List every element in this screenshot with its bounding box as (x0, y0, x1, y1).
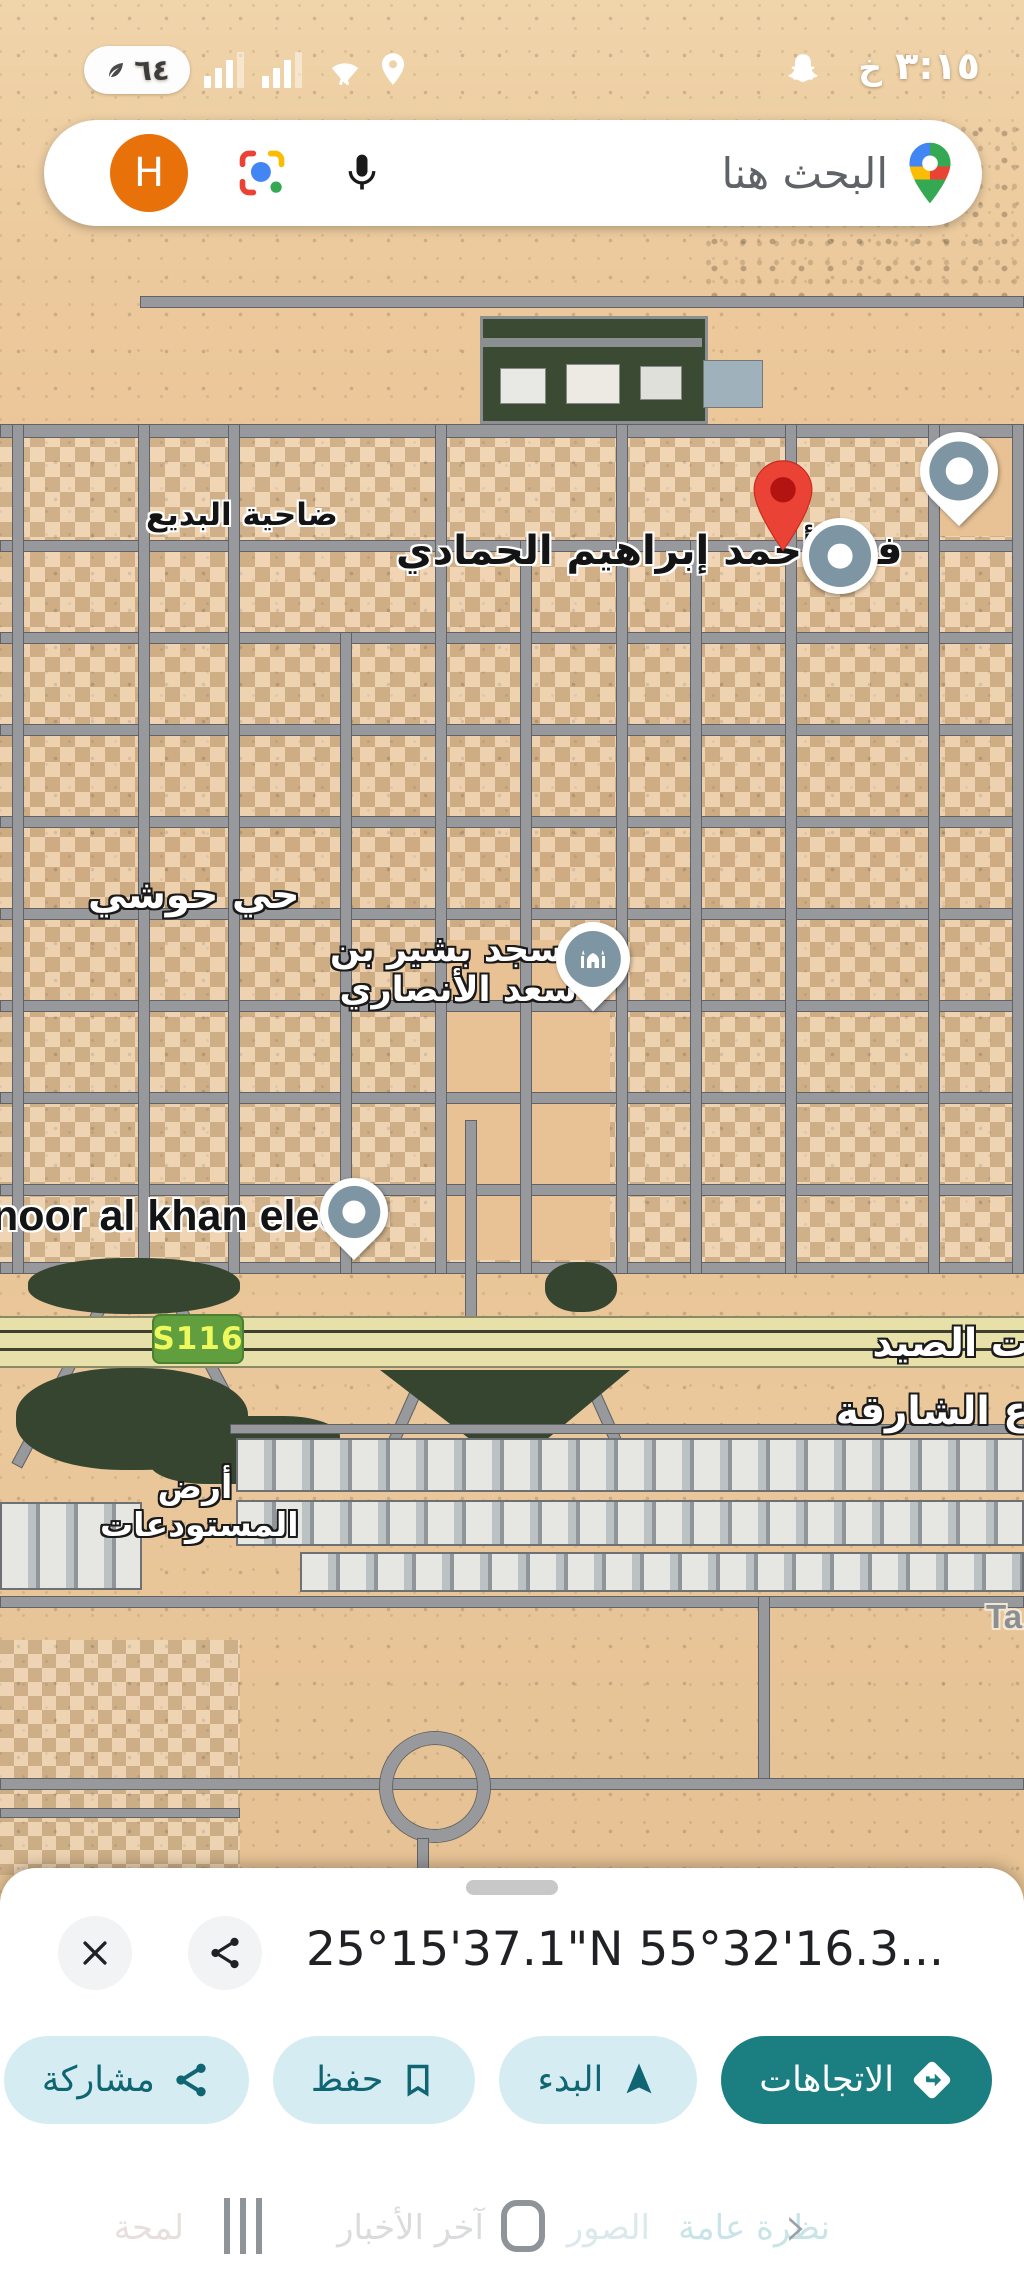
status-app-letter: خ (858, 48, 882, 87)
poi-circle-dot (828, 544, 853, 569)
bars-tab-icon (224, 2198, 262, 2254)
signal-icon (204, 52, 244, 88)
road (0, 1092, 1024, 1104)
signal-icon-sim2 (262, 52, 302, 88)
tab-news[interactable]: آخر الأخبار (337, 2208, 484, 2248)
status-bar: ٦٤ خ ٣:١٥ (0, 40, 1024, 104)
share-icon (206, 1934, 244, 1972)
place-bottom-sheet[interactable]: 25°15'37.1"N 55°32'16.3... الاتجاهات الب… (0, 1868, 1024, 2275)
share-button-header[interactable] (188, 1916, 262, 1990)
drag-handle[interactable] (466, 1880, 558, 1895)
road (520, 540, 532, 1274)
building (703, 360, 763, 408)
mosque-icon (575, 941, 611, 977)
close-button[interactable] (58, 1916, 132, 1990)
warehouses-label-line2: المستودعات (100, 1506, 290, 1544)
share-button-chip[interactable]: مشاركة (4, 2036, 249, 2124)
coordinates-title: 25°15'37.1"N 55°32'16.3... (306, 1922, 1006, 1977)
chevron-right-icon[interactable]: › (785, 2192, 808, 2260)
navigation-icon (619, 2060, 659, 2100)
map-label-hawshi[interactable]: حي حوشي (88, 874, 300, 919)
map-label-ta[interactable]: Ta (986, 1598, 1022, 1636)
share-icon (171, 2060, 211, 2100)
road (228, 424, 240, 1274)
close-icon (78, 1936, 112, 1970)
greenery (28, 1258, 240, 1314)
phone-screen: S116 ضاحية البديع فيلا أحمد إبراهيم الحم… (0, 0, 1024, 2275)
destination-pin[interactable] (748, 458, 818, 562)
compound-road (480, 338, 702, 347)
battery-indicator: ٦٤ (84, 46, 190, 94)
road (138, 424, 150, 1274)
warehouse-row (236, 1500, 1024, 1546)
circle-tab-icon (501, 2200, 545, 2252)
start-button[interactable]: البدء (499, 2036, 697, 2124)
warehouses-label-line1: أرض (100, 1468, 290, 1506)
compound-building (640, 366, 682, 400)
directions-icon (910, 2058, 954, 2102)
roundabout (380, 1732, 490, 1842)
road (690, 540, 702, 1274)
directions-button[interactable]: الاتجاهات (721, 2036, 992, 2124)
road (0, 816, 1024, 828)
route-badge: S116 (152, 1314, 244, 1364)
map-label-electrical[interactable]: noor al khan elect (0, 1192, 358, 1241)
map-label-mosque[interactable]: مسجد بشير بن سعد الأنصاري (330, 930, 587, 1011)
route-badge-label: S116 (152, 1321, 243, 1357)
tab-photos[interactable]: الصور (567, 2208, 650, 2248)
google-maps-pin-icon (904, 140, 956, 206)
mic-icon[interactable] (340, 144, 384, 202)
google-lens-icon[interactable] (236, 147, 288, 199)
map-label-district[interactable]: ضاحية البديع (146, 498, 338, 534)
warehouse-row (300, 1552, 1024, 1592)
wifi-icon (322, 48, 368, 92)
road (0, 724, 1024, 736)
road (140, 296, 1024, 308)
search-bar[interactable]: البحث هنا H (44, 120, 982, 226)
road (0, 1778, 1024, 1790)
action-chips-row: الاتجاهات البدء حفظ مشاركة (0, 2036, 1024, 2126)
road (0, 632, 1024, 644)
road (758, 1596, 770, 1788)
map-label-sharjah-street[interactable]: ع الشارقة (836, 1390, 1024, 1435)
road (0, 1596, 1024, 1608)
mosque-label-line2: سعد الأنصاري (330, 970, 587, 1010)
road (1012, 424, 1024, 1274)
warehouse-row (236, 1438, 1024, 1492)
share-label: مشاركة (42, 2060, 155, 2100)
greenery (545, 1262, 617, 1312)
status-time: ٣:١٥ (895, 44, 980, 88)
directions-label: الاتجاهات (759, 2060, 894, 2100)
compound-building (566, 364, 620, 404)
account-avatar[interactable]: H (110, 134, 188, 212)
mosque-label-line1: مسجد بشير بن (330, 930, 587, 970)
map-label-warehouses[interactable]: أرض المستودعات (100, 1468, 290, 1544)
leaf-icon (104, 58, 128, 82)
city-blocks-texture (0, 1640, 240, 1875)
map-label-fishing[interactable]: ت الصيد (872, 1322, 1024, 1367)
tab-about[interactable]: لمحة (114, 2208, 184, 2248)
road (0, 424, 1024, 438)
snapchat-icon (782, 48, 824, 92)
road (12, 424, 24, 1274)
save-button[interactable]: حفظ (273, 2036, 476, 2124)
bookmark-icon (399, 2061, 437, 2099)
search-placeholder[interactable]: البحث هنا (722, 149, 888, 198)
save-label: حفظ (311, 2060, 384, 2100)
location-on-icon (374, 46, 412, 92)
battery-percent: ٦٤ (134, 53, 169, 87)
bottom-tabs-row: نظرة عامة › الصور آخر الأخبار لمحة (0, 2198, 1024, 2268)
compound-building (500, 368, 546, 404)
road (0, 1808, 240, 1818)
road (928, 424, 940, 1274)
start-label: البدء (537, 2060, 603, 2100)
road (465, 1120, 477, 1320)
